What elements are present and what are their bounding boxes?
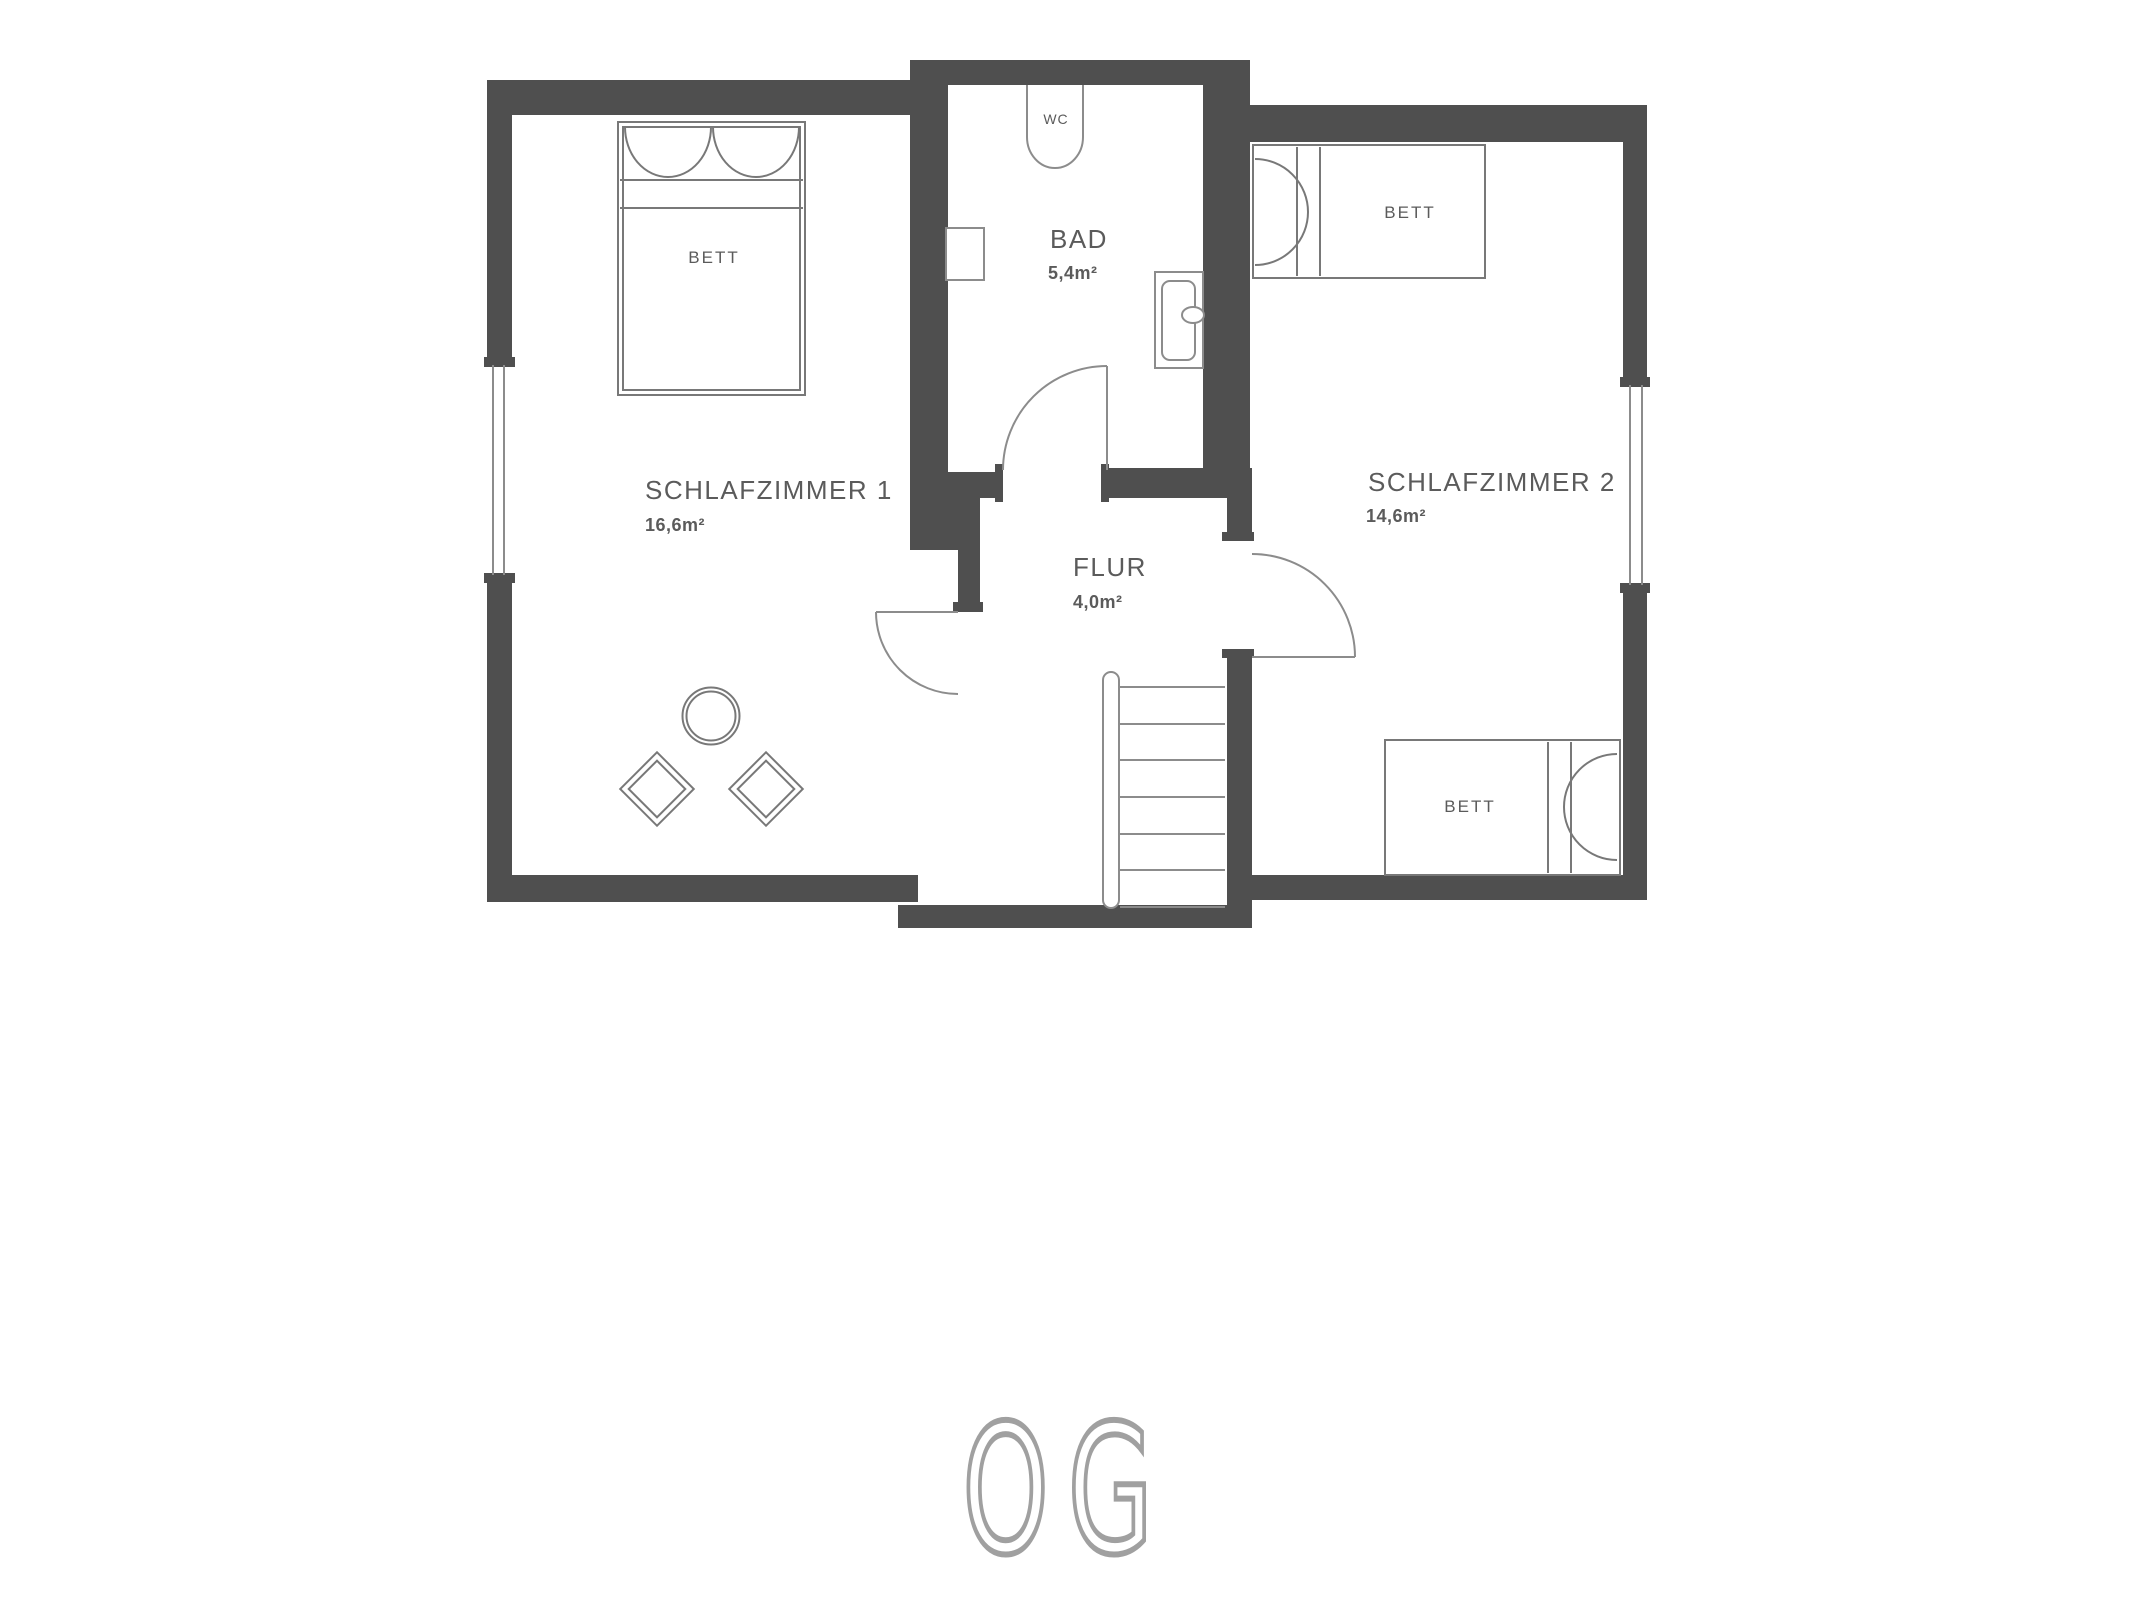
wall-sz1-bottom [487, 875, 918, 902]
floorplan-page: SCHLAFZIMMER 1 16,6m² BAD 5,4m² FLUR 4,0… [0, 0, 2133, 1600]
chair-icon [729, 752, 803, 826]
wall-flur-left-block [910, 472, 980, 550]
room-area-schlafzimmer1: 16,6m² [645, 516, 705, 534]
wall-sz1-top [487, 80, 910, 115]
bathtub-drain [1182, 307, 1204, 323]
pillow-icon [713, 127, 799, 177]
wall-sz2-bottom [1227, 875, 1647, 900]
sink-icon [946, 228, 984, 280]
room-area-schlafzimmer2: 14,6m² [1366, 507, 1426, 525]
door-jamb [1222, 649, 1254, 658]
door-arc-bad [1003, 366, 1107, 470]
window-cap [484, 573, 515, 583]
wc-label: WC [1043, 112, 1068, 126]
bed-label-sz2-bottom: BETT [1444, 798, 1495, 815]
sitting-area [620, 688, 803, 826]
room-label-bad: BAD [1050, 226, 1108, 252]
room-label-schlafzimmer2: SCHLAFZIMMER 2 [1368, 469, 1616, 495]
door-arc-sz1 [876, 612, 958, 694]
bed-label-sz2-top: BETT [1384, 204, 1435, 221]
wall-left-lower [487, 575, 512, 902]
table-icon [687, 692, 736, 741]
window-cap [1620, 583, 1650, 593]
wall-flur-bottom [898, 905, 1248, 928]
stair-handrail [1103, 672, 1119, 908]
room-area-bad: 5,4m² [1048, 264, 1098, 282]
wall-right-lower [1623, 585, 1647, 900]
room-area-flur: 4,0m² [1073, 593, 1123, 611]
door-jamb [995, 464, 1003, 502]
wall-left-upper [487, 80, 512, 365]
pillow-icon [1255, 159, 1308, 265]
stairs-symbol [1103, 672, 1225, 908]
bed-single-sz2-top [1253, 145, 1485, 278]
door-arc-sz2 [1252, 554, 1355, 657]
door-jamb [953, 602, 983, 612]
bed-single-sz2-bottom [1385, 740, 1620, 875]
window-cap [1620, 377, 1650, 387]
wall-right-upper [1623, 105, 1647, 385]
window-cap [484, 357, 515, 367]
room-label-schlafzimmer1: SCHLAFZIMMER 1 [645, 477, 893, 503]
pillow-icon [625, 127, 711, 177]
door-jamb [1222, 532, 1254, 541]
bed-label-sz1: BETT [688, 249, 739, 266]
wall-bad-right [1203, 60, 1250, 472]
chair-icon [620, 752, 694, 826]
wall-center-lower [1227, 657, 1252, 928]
floor-label-og: OG [962, 1402, 1172, 1580]
wall-sz2-top [1250, 105, 1647, 142]
wall-bad-left [910, 60, 948, 472]
wall-bad-top [910, 60, 1250, 85]
room-label-flur: FLUR [1073, 554, 1147, 580]
wall-center-upper [1227, 472, 1252, 540]
table-icon [683, 688, 740, 745]
